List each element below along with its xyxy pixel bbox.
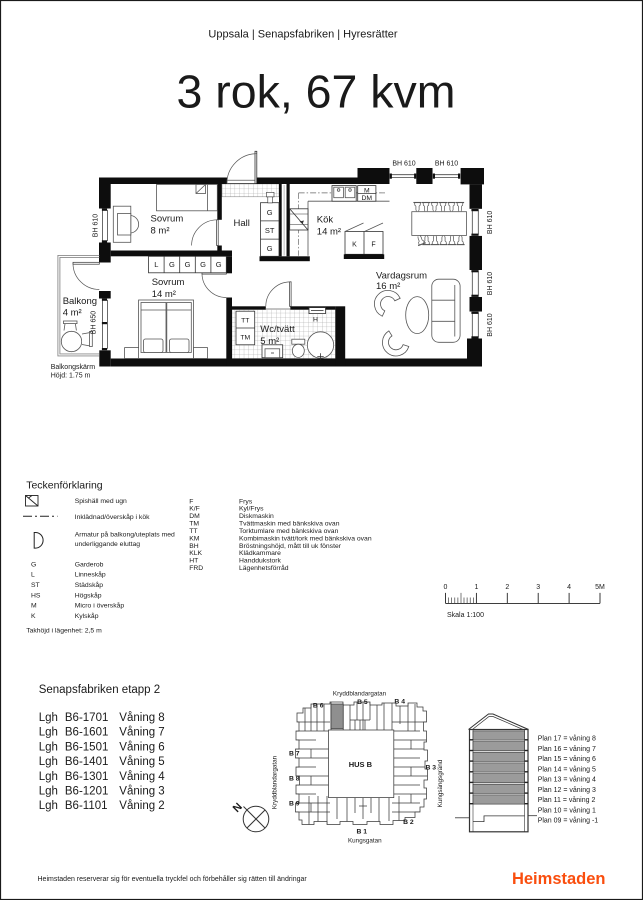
svg-text:BH 610: BH 610 [435, 161, 458, 168]
svg-text:B 7: B 7 [289, 751, 300, 758]
svg-text:Micro i överskåp: Micro i överskåp [75, 602, 125, 610]
svg-text:5M: 5M [595, 584, 605, 591]
svg-text:Städskåp: Städskåp [75, 581, 104, 589]
svg-text:BH: BH [189, 543, 199, 550]
svg-text:Balkong: Balkong [63, 296, 97, 307]
svg-text:Handdukstork: Handdukstork [239, 558, 282, 565]
svg-text:HT: HT [189, 558, 198, 565]
svg-text:2: 2 [505, 584, 509, 591]
svg-text:Högskåp: Högskåp [75, 591, 102, 599]
svg-text:Bröstningshöjd, mått till uk f: Bröstningshöjd, mått till uk fönster [239, 542, 342, 550]
svg-text:DM: DM [189, 513, 200, 520]
svg-text:Sovrum: Sovrum [151, 214, 184, 225]
svg-text:Våning 7: Våning 7 [119, 727, 164, 739]
svg-text:G: G [216, 260, 222, 269]
svg-text:Heimstaden reserverar sig för: Heimstaden reserverar sig för eventuella… [38, 875, 308, 883]
svg-text:Lgh: Lgh [39, 727, 58, 739]
svg-text:M: M [364, 187, 370, 194]
svg-text:Kombimaskin tvätt/tork med bän: Kombimaskin tvätt/tork med bänkskiva ova… [239, 535, 372, 542]
svg-text:14 m²: 14 m² [152, 289, 176, 300]
svg-text:B 4: B 4 [394, 699, 405, 706]
svg-text:Sovrum: Sovrum [152, 277, 185, 288]
svg-text:Höjd: 1.75 m: Höjd: 1.75 m [51, 373, 91, 380]
svg-text:Våning 3: Våning 3 [119, 786, 164, 798]
svg-text:Wc/tvätt: Wc/tvätt [260, 324, 295, 335]
svg-text:B6-1701: B6-1701 [65, 712, 108, 724]
svg-text:Lgh: Lgh [39, 741, 58, 753]
svg-text:Plan 14 = våning 5: Plan 14 = våning 5 [538, 765, 596, 773]
svg-text:Lägenhetsförråd: Lägenhetsförråd [239, 564, 289, 572]
svg-text:Lgh: Lgh [39, 756, 58, 768]
svg-text:BH 610: BH 610 [487, 313, 494, 336]
svg-text:Linneskåp: Linneskåp [75, 571, 106, 579]
svg-text:Våning 8: Våning 8 [119, 712, 164, 724]
svg-text:G: G [267, 208, 273, 217]
svg-text:Kyl/Frys: Kyl/Frys [239, 506, 264, 513]
svg-text:3: 3 [536, 584, 540, 591]
svg-text:Vardagsrum: Vardagsrum [376, 271, 427, 282]
svg-text:3 rok, 67 kvm: 3 rok, 67 kvm [176, 66, 455, 118]
svg-text:Våning 6: Våning 6 [119, 741, 164, 753]
svg-text:Plan 17 = våning 8: Plan 17 = våning 8 [538, 735, 596, 743]
svg-text:G: G [169, 260, 175, 269]
svg-text:Heimstaden: Heimstaden [512, 870, 606, 888]
svg-text:5 m²: 5 m² [260, 336, 279, 347]
svg-text:B6-1401: B6-1401 [65, 756, 108, 768]
svg-text:G: G [31, 561, 36, 568]
svg-text:ST: ST [265, 226, 275, 235]
svg-text:L: L [154, 260, 158, 269]
svg-text:FRD: FRD [189, 565, 203, 572]
svg-text:BH 610: BH 610 [392, 161, 415, 168]
svg-text:H: H [313, 317, 318, 324]
svg-text:B 2: B 2 [403, 819, 414, 826]
svg-text:Torktumlare med bänkskiva ovan: Torktumlare med bänkskiva ovan [239, 528, 339, 535]
svg-text:K: K [31, 613, 36, 620]
svg-text:Balkongskärm: Balkongskärm [51, 364, 96, 371]
svg-text:Plan 09 = våning -1: Plan 09 = våning -1 [538, 817, 599, 825]
svg-text:M: M [31, 603, 37, 610]
svg-text:TM: TM [240, 334, 250, 341]
svg-text:Våning 5: Våning 5 [119, 756, 164, 768]
svg-text:G: G [185, 260, 191, 269]
svg-text:TT: TT [189, 528, 197, 535]
svg-text:Tvättmaskin med bänkskiva ovan: Tvättmaskin med bänkskiva ovan [239, 521, 340, 528]
svg-text:B6-1601: B6-1601 [65, 727, 108, 739]
svg-text:1: 1 [474, 584, 478, 591]
svg-text:16 m²: 16 m² [376, 281, 400, 292]
svg-text:B 5: B 5 [357, 699, 368, 706]
svg-text:underliggande eluttag: underliggande eluttag [75, 541, 141, 548]
svg-text:Inklädnad/överskåp i kök: Inklädnad/överskåp i kök [75, 513, 150, 521]
svg-text:G: G [267, 244, 273, 253]
svg-text:Senapsfabriken etapp 2: Senapsfabriken etapp 2 [39, 684, 160, 696]
svg-text:14 m²: 14 m² [317, 226, 341, 237]
svg-text:BH 650: BH 650 [91, 311, 98, 334]
svg-text:TM: TM [189, 521, 199, 528]
svg-text:F: F [371, 242, 375, 249]
svg-text:B 1: B 1 [357, 828, 368, 835]
svg-text:Våning 2: Våning 2 [119, 800, 164, 812]
svg-text:Våning 4: Våning 4 [119, 771, 165, 783]
svg-text:Skala 1:100: Skala 1:100 [447, 612, 484, 619]
svg-text:B6-1301: B6-1301 [65, 771, 108, 783]
svg-text:Lgh: Lgh [39, 786, 58, 798]
svg-text:Lgh: Lgh [39, 712, 58, 724]
svg-text:Uppsala | Senapsfabriken | Hyr: Uppsala | Senapsfabriken | Hyresrätter [208, 29, 397, 41]
svg-text:Plan 12 = våning 3: Plan 12 = våning 3 [538, 786, 596, 794]
svg-text:Frys: Frys [239, 498, 253, 505]
svg-text:Kungsgatan: Kungsgatan [348, 838, 382, 845]
svg-text:Takhöjd i lägenhet: 2,5 m: Takhöjd i lägenhet: 2,5 m [26, 628, 102, 635]
svg-text:8 m²: 8 m² [151, 226, 170, 237]
svg-text:HS: HS [31, 592, 41, 599]
svg-text:L: L [31, 572, 35, 579]
svg-text:Plan 15 = våning 6: Plan 15 = våning 6 [538, 755, 596, 763]
svg-text:Diskmaskin: Diskmaskin [239, 513, 274, 520]
svg-text:Plan 10 = våning 1: Plan 10 = våning 1 [538, 806, 596, 814]
svg-text:Garderob: Garderob [75, 561, 104, 568]
svg-text:Kryddblandargatan: Kryddblandargatan [333, 691, 387, 698]
svg-text:B6-1101: B6-1101 [65, 800, 108, 812]
svg-text:B 9: B 9 [289, 800, 300, 807]
svg-text:K/F: K/F [189, 506, 200, 513]
svg-text:0: 0 [444, 584, 448, 591]
svg-text:KLK: KLK [189, 550, 202, 557]
svg-text:Plan 16 = våning 7: Plan 16 = våning 7 [538, 745, 596, 753]
svg-text:B 3: B 3 [426, 765, 437, 772]
svg-text:Lgh: Lgh [39, 800, 58, 812]
svg-text:4 m²: 4 m² [63, 307, 82, 318]
svg-text:Kök: Kök [317, 214, 334, 225]
svg-text:BH 610: BH 610 [93, 214, 100, 237]
svg-text:KM: KM [189, 535, 200, 542]
svg-text:F: F [189, 498, 193, 505]
svg-text:K: K [352, 242, 357, 249]
svg-text:Kungsängsgränd: Kungsängsgränd [437, 759, 444, 807]
svg-text:B 6: B 6 [313, 703, 324, 710]
svg-text:B6-1501: B6-1501 [65, 741, 108, 753]
svg-text:Klädkammare: Klädkammare [239, 550, 281, 557]
svg-text:ST: ST [31, 582, 40, 589]
svg-text:B6-1201: B6-1201 [65, 786, 108, 798]
svg-text:BH 610: BH 610 [487, 272, 494, 295]
svg-text:Plan 11 = våning 2: Plan 11 = våning 2 [538, 796, 596, 804]
svg-text:Hall: Hall [234, 218, 250, 229]
svg-text:Lgh: Lgh [39, 771, 58, 783]
svg-text:HUS B: HUS B [349, 760, 373, 769]
svg-text:TT: TT [241, 318, 249, 325]
svg-text:Kylskåp: Kylskåp [75, 612, 99, 620]
svg-text:Spishäll med ugn: Spishäll med ugn [75, 498, 127, 505]
svg-text:4: 4 [567, 584, 571, 591]
svg-text:DM: DM [362, 195, 373, 202]
svg-text:BH 610: BH 610 [487, 211, 494, 234]
svg-text:B 8: B 8 [289, 775, 300, 782]
svg-text:Teckenförklaring: Teckenförklaring [26, 480, 103, 492]
svg-text:Kryddblandargatan: Kryddblandargatan [272, 755, 279, 809]
svg-text:G: G [200, 260, 206, 269]
svg-text:Plan 13 = våning 4: Plan 13 = våning 4 [538, 776, 596, 784]
svg-text:Armatur på balkong/uteplats me: Armatur på balkong/uteplats med [75, 531, 175, 539]
